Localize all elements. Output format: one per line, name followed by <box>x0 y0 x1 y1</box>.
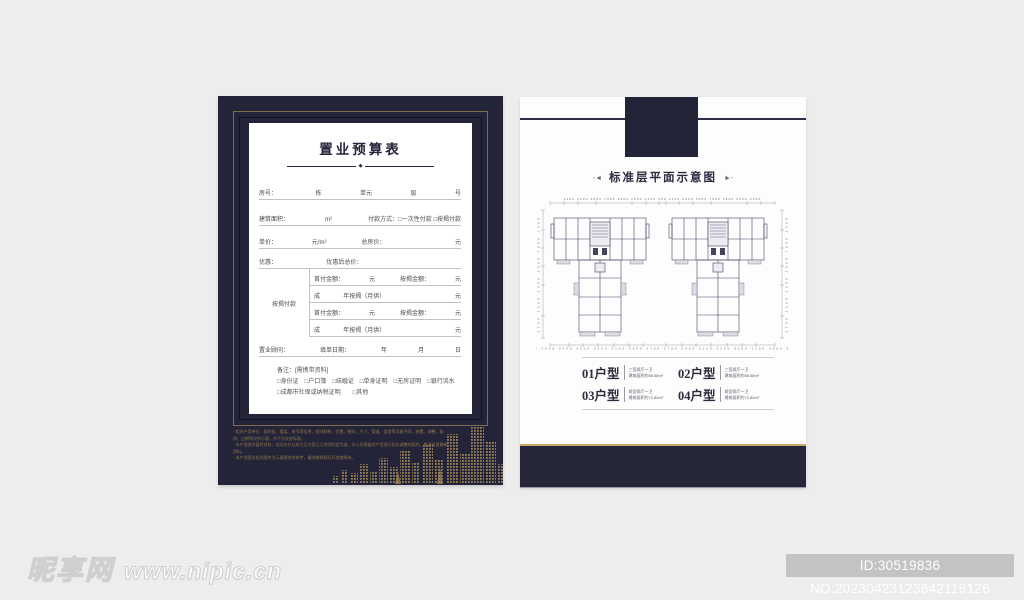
divider <box>624 365 625 380</box>
left-ornament-icon: -◄ <box>593 175 602 182</box>
unit-desc: 三室两厅一卫 建筑面积约88.58m² <box>629 367 664 378</box>
plan-dims-top: 2400 2600 3600 7300 3600 2600 2400 600 2… <box>564 197 762 201</box>
field-label: 元 <box>369 274 375 283</box>
unit-desc: 三室两厅一卫 建筑面积约88.58m² <box>725 367 760 378</box>
mortgage-row-monthly: 成 年按揭（月供） 元 <box>310 286 461 303</box>
plan-dims-right: 2700 2300 2600 2900 7900 2400 <box>784 216 788 333</box>
field-label: 元 <box>455 274 461 283</box>
budget-form-paper: 置业预算表 ◆ 房号： 栋 单元 层 号 建筑面积： m² 付款方式：□一次性付… <box>249 123 472 414</box>
watermark-url: www.nipic.cn <box>124 558 282 585</box>
note-checkline: □身份证 □户口簿 □结婚证 □单身证明 □无房证明 □银行流水 <box>277 377 460 388</box>
field-label: 首付金额： <box>314 274 344 283</box>
field-label: 日 <box>455 345 461 354</box>
field-label: 元 <box>455 237 461 246</box>
note-title: 备注：[需携带资料] <box>277 366 460 377</box>
mortgage-row-downpayment: 首付金额： 元 按揭金额： 元 <box>310 269 461 286</box>
image-id-badge: ID:30519836 NO:20230423123642119126 <box>786 554 1014 577</box>
unit-type-03: 03户型 两室两厅一卫 建筑面积约72.82m² <box>582 385 678 404</box>
unit-area: 建筑面积约88.58m² <box>629 373 664 379</box>
field-label: 优惠后总价： <box>326 257 362 266</box>
field-label: 号 <box>455 188 461 197</box>
unit-type-01: 01户型 三室两厅一卫 建筑面积约88.58m² <box>582 363 678 382</box>
field-label: 置业顾问： <box>259 345 289 354</box>
form-row-area-payment: 建筑面积： m² 付款方式：□一次性付款 □按揭付款 <box>259 200 461 226</box>
field-label: 按揭金额： <box>400 274 430 283</box>
mortgage-row-downpayment: 首付金额： 元 按揭金额： 元 <box>310 303 461 320</box>
form-row-consultant-date: 置业顾问： 填单日期： 年 月 日 <box>259 337 461 357</box>
budget-sheet-panel: 置业预算表 ◆ 房号： 栋 单元 层 号 建筑面积： m² 付款方式：□一次性付… <box>218 96 503 485</box>
form-row-house-number: 房号： 栋 单元 层 号 <box>259 181 461 200</box>
unit-area: 建筑面积约72.82m² <box>629 395 664 401</box>
unit-type-02: 02户型 三室两厅一卫 建筑面积约88.58m² <box>678 363 774 382</box>
bookmark-tab <box>625 97 698 157</box>
title-divider: ◆ <box>287 164 434 169</box>
unit-desc: 两室两厅一卫 建筑面积约72.82m² <box>725 389 760 400</box>
right-ornament-icon: ►- <box>724 175 733 182</box>
plan-dims-bottom: 3700 2600 3100 3200 3200 3100 2600 3700 … <box>536 347 789 351</box>
unit-area: 建筑面积约72.82m² <box>725 395 760 401</box>
field-label: 栋 <box>316 188 322 197</box>
field-label: 元/m² <box>312 237 327 246</box>
field-label: 总房价： <box>361 237 385 246</box>
field-label: 成 <box>314 325 320 334</box>
divider-line <box>365 166 434 167</box>
field-label: 元 <box>455 291 461 300</box>
mortgage-label: 按揭付款 <box>259 269 310 337</box>
unit-type-legend: 01户型 三室两厅一卫 建筑面积约88.58m² 02户型 三室两厅一卫 建筑面… <box>582 357 774 410</box>
field-label: 元 <box>369 308 375 317</box>
floorplan-title: -◄标准层平面示意图►- <box>520 169 806 185</box>
plan-dims-left: 2700 2300 2600 2900 7900 2400 <box>537 216 541 333</box>
footer-band <box>520 446 806 488</box>
watermark: 昵享网 www.nipic.cn <box>27 548 282 587</box>
unit-desc: 两室两厅一卫 建筑面积约72.82m² <box>629 389 664 400</box>
field-label: m² <box>325 217 332 223</box>
floorplan-title-text: 标准层平面示意图 <box>609 172 717 184</box>
field-label: 年按揭（月供） <box>343 325 385 334</box>
mortgage-row-monthly: 成 年按揭（月供） 元 <box>310 320 461 337</box>
building-cluster-right <box>669 218 767 336</box>
unit-number: 02户型 <box>678 363 716 382</box>
field-label: 月 <box>418 345 424 354</box>
field-label: 元 <box>455 325 461 334</box>
note-checkline: □成都市社保或纳税证明 □其他 <box>277 388 460 399</box>
field-label: 单元 <box>360 188 372 197</box>
field-label: 年按揭（月供） <box>343 291 385 300</box>
unit-number: 03户型 <box>582 385 620 404</box>
divider <box>720 365 721 380</box>
field-label: 年 <box>381 345 387 354</box>
field-label: 按揭金额： <box>400 308 430 317</box>
unit-area: 建筑面积约88.58m² <box>725 373 760 379</box>
field-label: 元 <box>455 308 461 317</box>
field-label: 优惠： <box>259 257 277 266</box>
field-label: 填单日期： <box>320 345 350 354</box>
floorplan-panel: -◄标准层平面示意图►- <box>520 97 806 487</box>
unit-number: 01户型 <box>582 363 620 382</box>
mortgage-rows: 首付金额： 元 按揭金额： 元 成 年按揭（月供） 元 首付金额： 元 按揭金额… <box>310 269 461 337</box>
field-label: 成 <box>314 291 320 300</box>
divider <box>720 387 721 402</box>
form-title: 置业预算表 <box>249 138 472 158</box>
divider <box>624 387 625 402</box>
field-label: 房号： <box>259 188 277 197</box>
field-label: 单价： <box>259 237 277 246</box>
field-label: 层 <box>411 188 417 197</box>
unit-type-04: 04户型 两室两厅一卫 建筑面积约72.82m² <box>678 385 774 404</box>
form-row-discount: 优惠： 优惠后总价： <box>259 249 461 269</box>
divider-line <box>287 166 356 167</box>
budget-form: 房号： 栋 单元 层 号 建筑面积： m² 付款方式：□一次性付款 □按揭付款 … <box>259 181 461 357</box>
field-label: 付款方式：□一次性付款 □按揭付款 <box>368 214 461 223</box>
note-block: 备注：[需携带资料] □身份证 □户口簿 □结婚证 □单身证明 □无房证明 □银… <box>277 366 460 399</box>
field-label: 建筑面积： <box>259 214 289 223</box>
building-cluster-left <box>551 218 649 336</box>
form-row-unit-price: 单价： 元/m² 总房价： 元 <box>259 226 461 249</box>
diamond-icon: ◆ <box>359 164 363 169</box>
watermark-site-name: 昵享网 <box>27 548 114 587</box>
city-skyline-graphic <box>333 424 503 484</box>
mortgage-block: 按揭付款 首付金额： 元 按揭金额： 元 成 年按揭（月供） 元 首付金额： <box>259 269 461 337</box>
field-label: 首付金额： <box>314 308 344 317</box>
floorplan-drawing: 2400 2600 3600 7300 3600 2600 2400 600 2… <box>536 196 789 351</box>
unit-number: 04户型 <box>678 385 716 404</box>
